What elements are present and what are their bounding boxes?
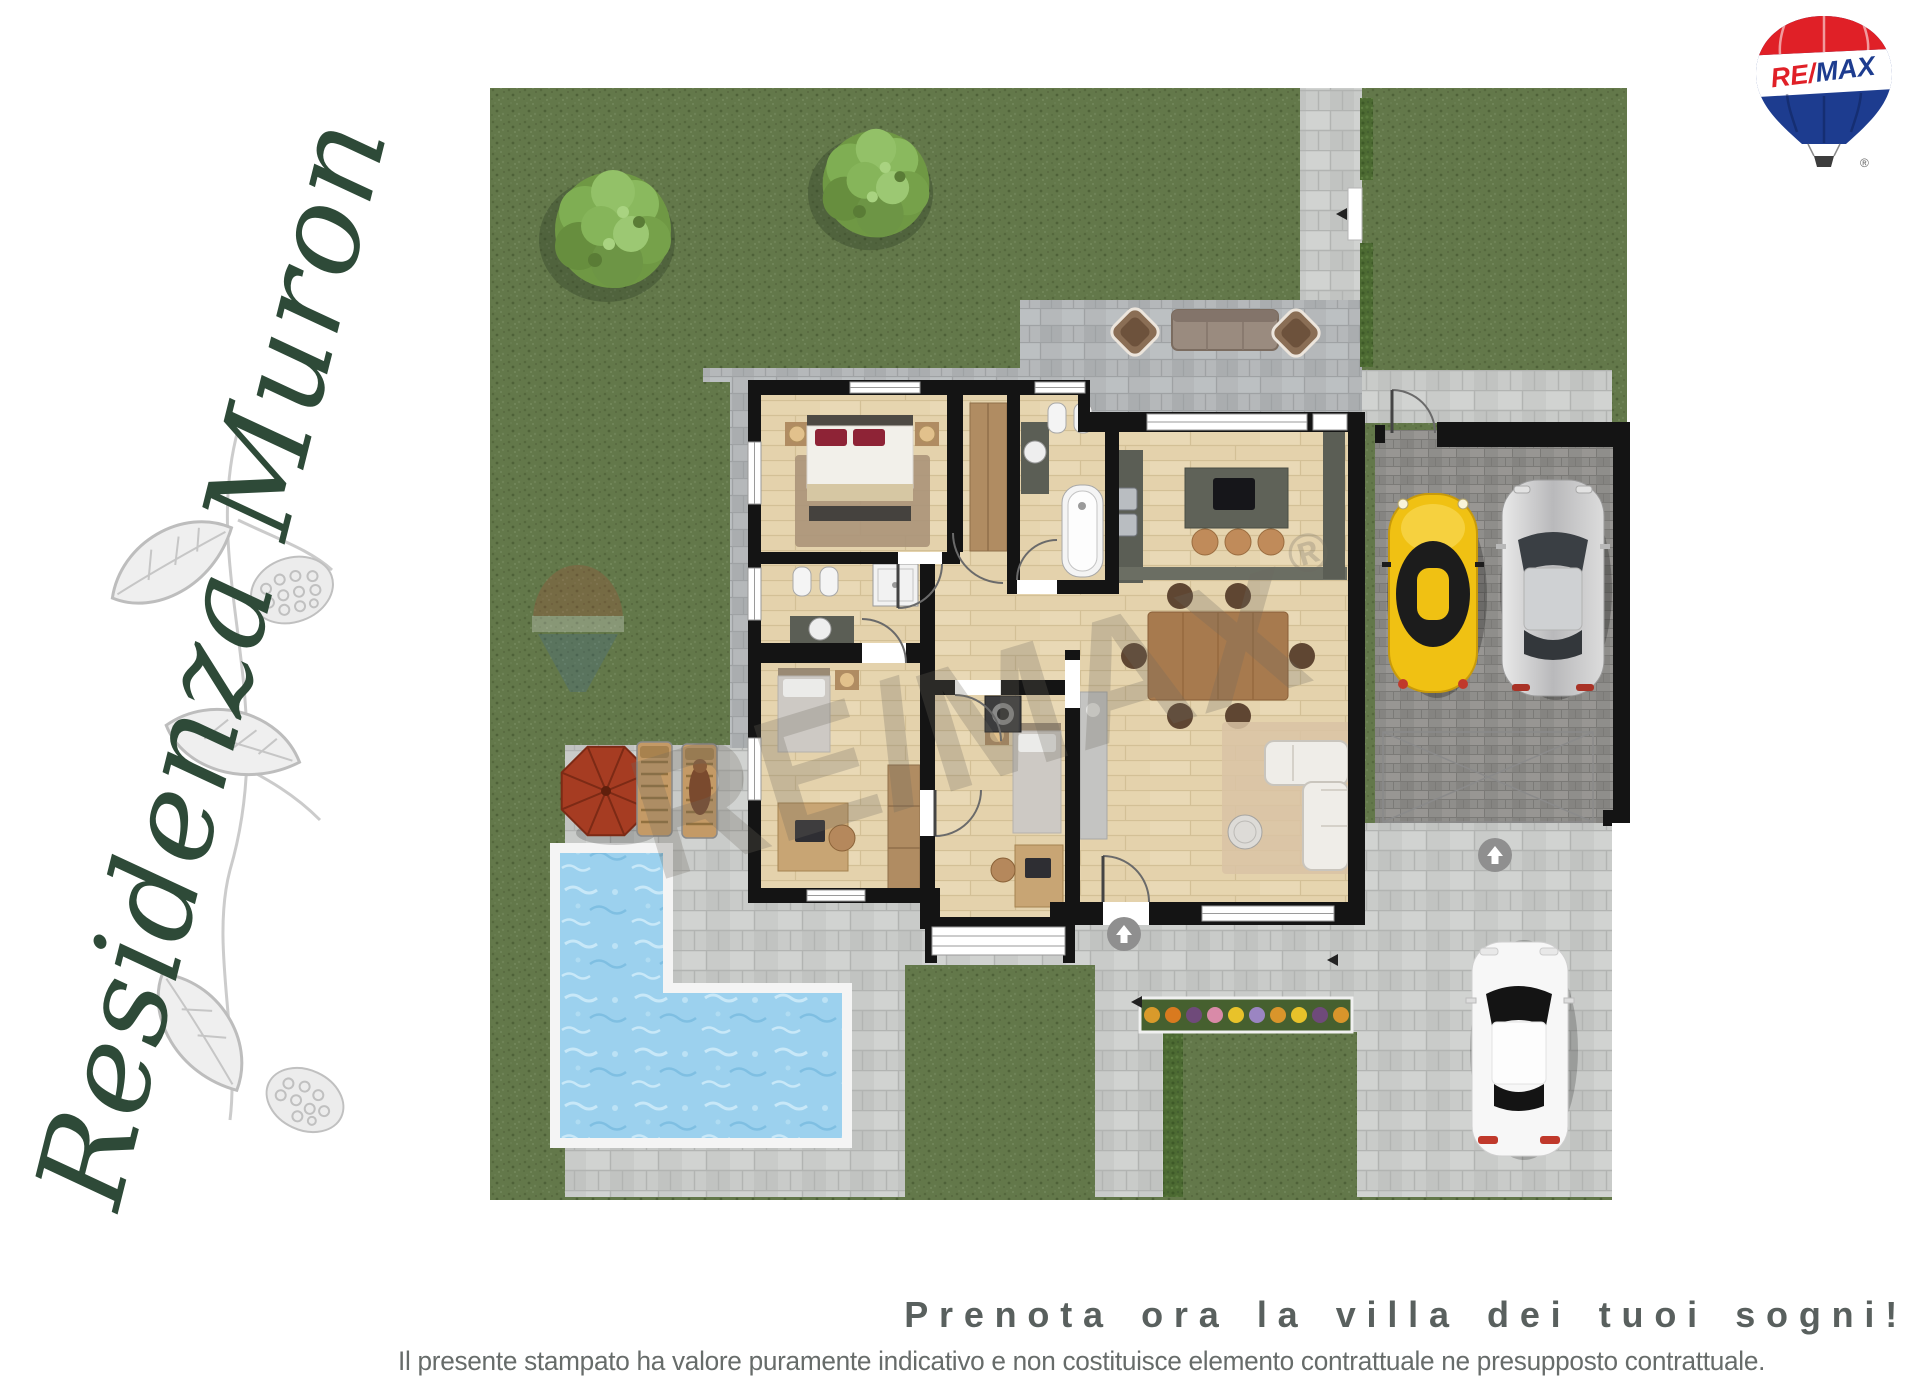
- outdoor-sofa: [1172, 310, 1278, 350]
- flower-bed: [1140, 998, 1352, 1032]
- floor-plan: RE/MAX®: [490, 70, 1630, 1205]
- coffee-table: [1228, 815, 1262, 849]
- garden-gate: [1348, 188, 1362, 240]
- hedge-strip: [1360, 243, 1373, 367]
- entrance-arrow: [1478, 838, 1512, 872]
- yellow-car: [1382, 494, 1487, 698]
- entrance-arrow: [1107, 917, 1141, 951]
- hedge-strip: [1360, 98, 1373, 180]
- bathtub: [1062, 485, 1103, 577]
- registered-mark: ®: [1860, 156, 1869, 168]
- lawn-patch: [1183, 1032, 1357, 1197]
- remax-balloon-logo: RE/MAX ®: [1742, 10, 1910, 168]
- master-bedroom: [785, 403, 1007, 551]
- balloon-basket: [1814, 156, 1834, 167]
- disclaimer: Il presente stampato ha valore puramente…: [398, 1346, 1765, 1377]
- hedge-strip: [1163, 1032, 1183, 1197]
- white-car: [1466, 940, 1578, 1160]
- headline: Prenota ora la villa dei tuoi sogni!: [904, 1294, 1908, 1336]
- silver-car: [1496, 480, 1612, 700]
- shower: [873, 564, 918, 606]
- lawn-patch: [905, 965, 1095, 1197]
- flyer-page: Residenza Muron: [0, 0, 1920, 1390]
